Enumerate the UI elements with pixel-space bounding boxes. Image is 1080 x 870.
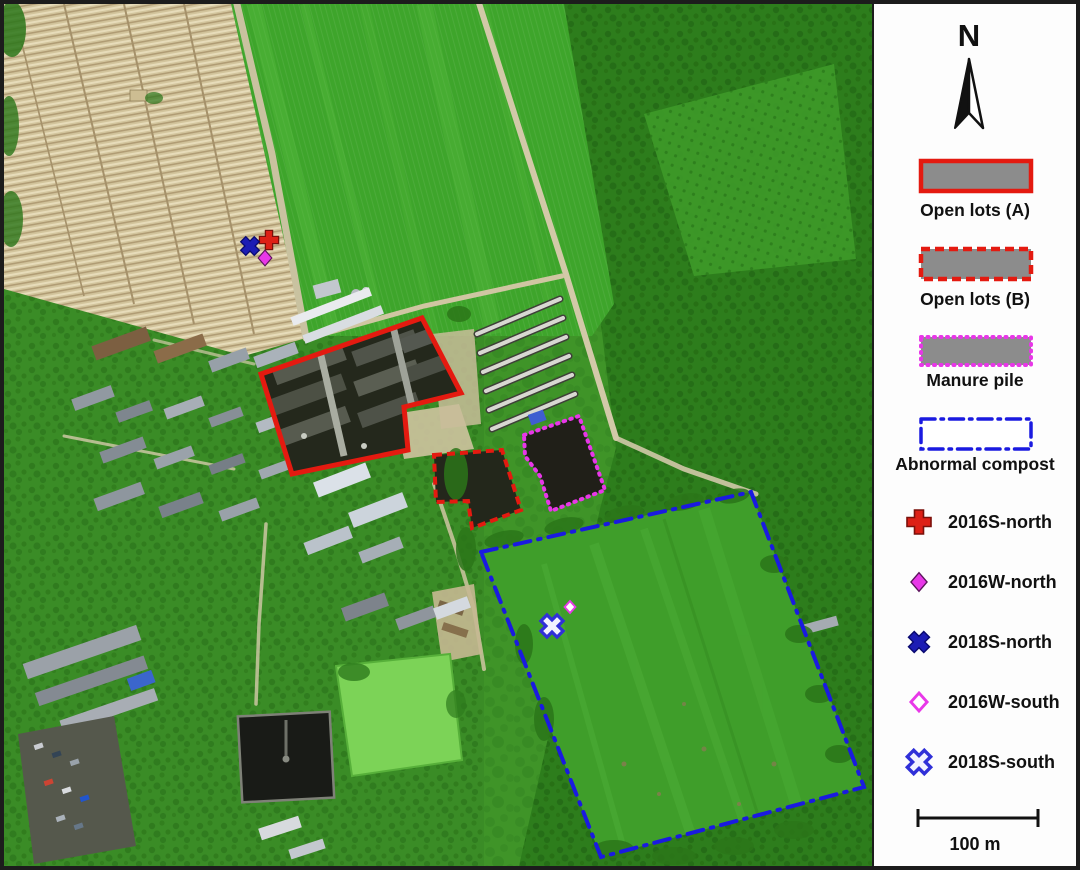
abnormal-compost-swatch <box>918 416 1034 452</box>
open-lots-a-label: Open lots (A) <box>874 200 1076 221</box>
legend-row-2018s-north: 2018S-north <box>900 624 1052 660</box>
blue-x-icon <box>900 624 938 660</box>
marker-label: 2018S-south <box>948 752 1055 773</box>
red-cross-icon <box>900 504 938 540</box>
legend-row-2016w-north: 2016W-north <box>900 564 1057 600</box>
magenta-open-diamond-icon <box>900 684 938 720</box>
satellite-map <box>4 4 872 866</box>
open-lots-b-label: Open lots (B) <box>874 289 1076 310</box>
manure-pile-label: Manure pile <box>874 370 1076 391</box>
scale-bar <box>914 806 1042 830</box>
legend-row-2018s-south: 2018S-south <box>900 744 1055 780</box>
legend-panel: N Open lots (A) Open lots (B) Manure pil… <box>872 4 1076 866</box>
legend-row-2016w-south: 2016W-south <box>900 684 1060 720</box>
blue-open-x-icon <box>900 744 938 780</box>
magenta-diamond-icon <box>900 564 938 600</box>
legend-row-2016s-north: 2016S-north <box>900 504 1052 540</box>
manure-pile-swatch <box>918 334 1034 368</box>
open-lots-b-swatch <box>918 246 1034 282</box>
figure-frame: N Open lots (A) Open lots (B) Manure pil… <box>0 0 1080 870</box>
scale-label: 100 m <box>874 834 1076 855</box>
marker-label: 2018S-north <box>948 632 1052 653</box>
open-lots-a-swatch <box>918 158 1034 194</box>
abnormal-compost-label: Abnormal compost <box>874 454 1076 475</box>
north-label: N <box>904 18 1034 54</box>
marker-label: 2016W-north <box>948 572 1057 593</box>
marker-label: 2016W-south <box>948 692 1060 713</box>
north-arrow-icon <box>947 56 991 134</box>
marker-label: 2016S-north <box>948 512 1052 533</box>
map-canvas <box>4 4 872 866</box>
